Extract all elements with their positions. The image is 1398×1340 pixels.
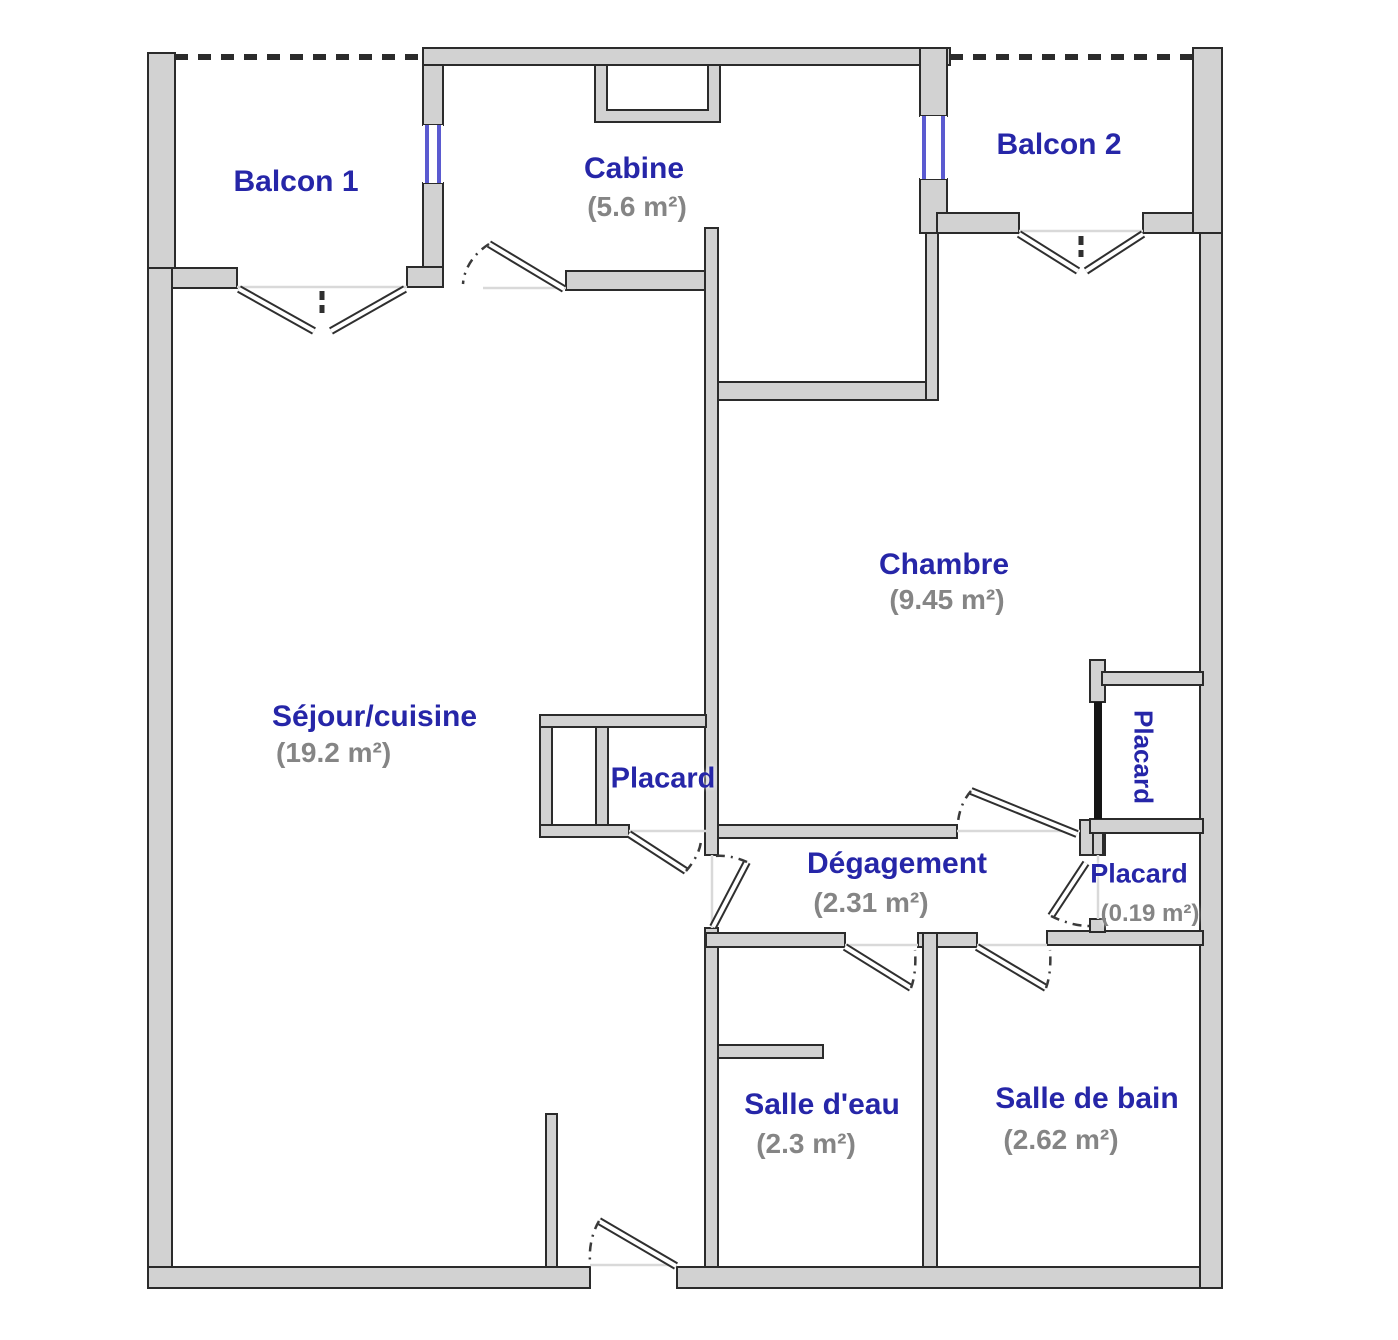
room-label-cabine: Cabine (584, 152, 684, 186)
wall-placard-chambre-north (1102, 672, 1203, 685)
room-area-sejour-cuisine: (19.2 m²) (276, 737, 391, 769)
wall-bottom-left (148, 1267, 590, 1288)
wall-salle-eau-west (705, 928, 718, 1267)
door-salle-de-bain-swing (1046, 950, 1050, 988)
floorplan-drawing (0, 0, 1398, 1340)
wall-placard-sejour-west (540, 715, 552, 837)
wall-placard-sejour-divider (596, 727, 608, 825)
wall-placard-couloir-west (1093, 833, 1103, 855)
wall-cabine-west-lower (423, 183, 443, 268)
wall-balcon2-east-pillar (1193, 48, 1222, 233)
wall-salle-eau-stub (718, 1045, 823, 1058)
wall-placard-mid (1090, 819, 1203, 833)
wall-cabine-niche-inner (607, 65, 708, 110)
room-label-sejour-cuisine: Séjour/cuisine (272, 700, 477, 734)
room-label-chambre: Chambre (879, 548, 1009, 582)
wall-sejour-chambre (705, 228, 718, 855)
wall-west (148, 268, 172, 1288)
wall-balcon2-south-left (937, 213, 1019, 233)
room-label-salle-d-eau: Salle d'eau (744, 1088, 900, 1122)
floorplan: Balcon 1 Cabine (5.6 m²) Balcon 2 Chambr… (0, 0, 1398, 1340)
room-area-cabine: (5.6 m²) (587, 191, 687, 223)
wall-salle-eau-bain-divider (923, 933, 937, 1267)
door-placard-sejour-swing (686, 841, 701, 871)
room-label-balcon-1: Balcon 1 (233, 165, 358, 199)
door-placard-chambre-panel-icon (1094, 702, 1102, 819)
wall-alcove-south (718, 382, 926, 400)
door-salle-eau-swing (911, 950, 915, 988)
wall-degagement-south-right (1047, 931, 1203, 945)
door-chambre-swing (958, 791, 971, 822)
door-cabine-swing (463, 244, 489, 284)
room-label-balcon-2: Balcon 2 (996, 128, 1121, 162)
wall-alcove-east (926, 233, 938, 400)
room-label-placard-sejour: Placard (611, 763, 716, 796)
door-degagement-swing (715, 856, 747, 862)
wall-cabine-west-foot (407, 267, 443, 287)
wall-cabine-south (566, 271, 707, 290)
wall-degagement-south-left (706, 933, 845, 947)
room-label-degagement: Dégagement (807, 847, 987, 881)
room-area-placard-couloir: (0.19 m²) (1101, 900, 1200, 928)
wall-east (1200, 226, 1222, 1288)
wall-chambre-degagement (718, 825, 957, 838)
wall-balcon1-west-pillar (148, 53, 175, 268)
room-area-degagement: (2.31 m²) (813, 887, 928, 919)
wall-placard-sejour-south (540, 825, 629, 837)
wall-placard-sejour-north (540, 715, 706, 727)
room-label-placard-couloir: Placard (1090, 859, 1188, 890)
wall-bottom-right (677, 1267, 1222, 1288)
wall-top (423, 48, 950, 65)
door-entrance-swing (590, 1221, 599, 1261)
room-area-salle-d-eau: (2.3 m²) (756, 1128, 856, 1160)
room-label-placard-chambre: Placard (1128, 710, 1159, 804)
door-placard-couloir-swing (1051, 916, 1089, 926)
wall-cabine-west-upper (423, 65, 443, 125)
room-label-salle-de-bain: Salle de bain (995, 1082, 1178, 1116)
room-area-salle-de-bain: (2.62 m²) (1003, 1124, 1118, 1156)
wall-cabine-east-upper (920, 48, 947, 116)
wall-entry-stub (546, 1114, 557, 1267)
room-area-chambre: (9.45 m²) (889, 584, 1004, 616)
wall-balcon2-south-right (1143, 213, 1193, 233)
windows (423, 116, 947, 183)
